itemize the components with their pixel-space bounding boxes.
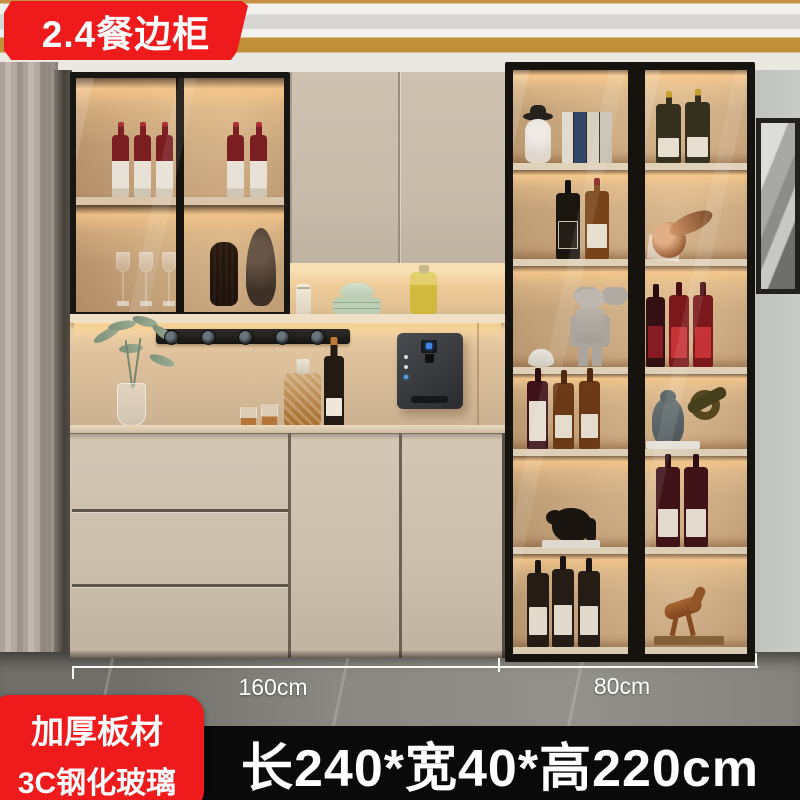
niche-divider [477,323,479,425]
feature-badge: 加厚板材 3C钢化玻璃 [0,695,204,800]
book-stack [562,112,612,163]
oil-bottle [410,272,437,315]
lighted-open-shelf [290,263,505,315]
dispenser-button [404,365,408,369]
plinth-shadow [70,651,506,658]
bearbrick-figure-body [575,308,605,344]
width-label-left: 160cm [218,674,328,701]
wine-bottle [693,295,713,367]
curtain [0,62,58,712]
rail-knob [201,330,216,345]
rail-knob [310,330,325,345]
wine-bottle [112,135,129,197]
wine-bottle [656,104,681,163]
gorilla-figurine [552,508,592,542]
display-base-board [646,441,700,449]
dispenser-button [404,375,408,379]
glass-plant-vase [117,383,146,426]
upper-cabinet-doors [290,72,505,263]
wine-bottle [578,571,600,647]
wine-bottle [134,135,151,197]
ceramic-jar [296,284,311,315]
plate-stack [333,297,381,315]
green-bowl [340,283,374,298]
feature-badge-line2: 3C钢化玻璃 [18,758,176,800]
glass-door-divider [176,78,184,312]
figurine-doll-body [525,119,551,163]
dispenser-button [404,355,408,359]
wine-bottle [579,381,600,449]
title-badge: 2.4餐边柜 [4,1,248,60]
wall-art-frame [756,118,800,294]
wine-bottle [227,135,244,197]
door-gap [502,433,505,658]
feature-badge-line1: 加厚板材 [31,705,163,753]
horse-sculpture-base [654,636,724,645]
wine-glass [116,252,130,306]
wine-glass [139,252,153,306]
door-gap [288,433,291,658]
width-label-right: 80cm [576,673,668,700]
whisky-bottle [585,191,609,259]
whisky-decanter [284,373,321,428]
measurement-tick [72,666,74,679]
drawer-gap [72,584,288,587]
bearbrick-figure-head [576,289,604,309]
title-badge-text: 2.4餐边柜 [42,4,210,58]
rail-knob [238,330,253,345]
size-banner-text: 长240*宽40*高220cm [205,726,795,800]
abstract-sculpture [652,398,684,446]
wine-glass [162,252,176,306]
wine-bottle [250,135,267,197]
wine-bottle [324,356,344,428]
door-gap [399,433,402,658]
rail-knob [275,330,290,345]
wine-bottle [527,381,548,449]
white-ornament [528,349,554,367]
measurement-line [72,666,758,668]
wine-bottle [685,102,710,163]
dispenser-tray [411,396,448,403]
dispenser-screen [421,340,437,353]
drawer-gap [72,509,288,512]
wine-bottle [669,295,689,367]
rail-knob [164,330,179,345]
ribbed-vase [210,242,238,306]
measurement-tick [755,653,757,668]
product-photo-scene: 160cm 80cm 长240*宽40*高220cm 2.4餐边柜 加厚板材 3… [0,0,800,800]
measurement-tick [498,658,500,672]
whisky-bottle [556,193,580,259]
wine-bottle [553,383,574,449]
wine-bottle [646,297,665,367]
wine-bottle [552,569,574,647]
wine-bottle [156,135,173,197]
display-base-board [542,540,600,548]
dispenser-spout [425,354,434,363]
wine-bottle [527,573,549,647]
glass-door-mullion [628,62,645,662]
wine-bottle [656,467,680,547]
wine-bottle [684,467,708,547]
